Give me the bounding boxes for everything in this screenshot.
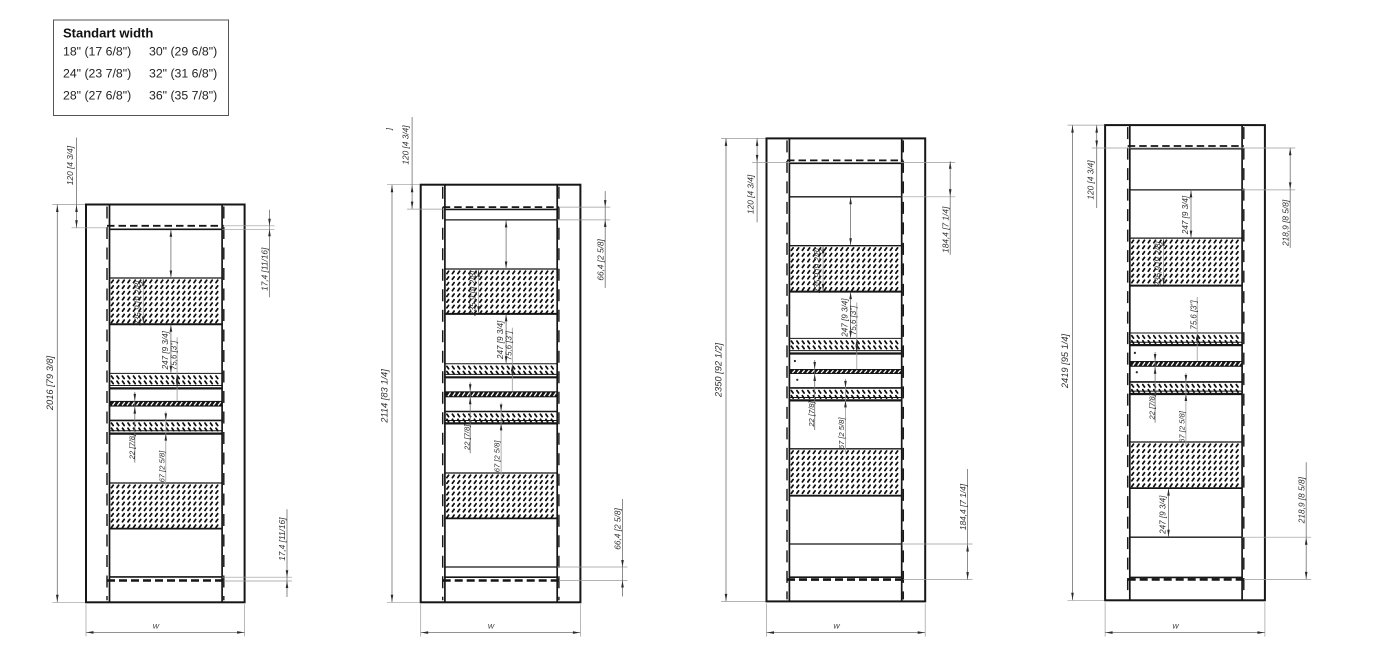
svg-text:218,9 [8 5/8]: 218,9 [8 5/8] [1296, 476, 1306, 524]
svg-text:66,4 [2 5/8]: 66,4 [2 5/8] [613, 508, 623, 550]
svg-text:18" (17 6/8"): 18" (17 6/8") [63, 45, 131, 59]
svg-text:235,9 [9 2/8]: 235,9 [9 2/8] [133, 280, 142, 327]
svg-text:235,9 [9 2/8]: 235,9 [9 2/8] [1154, 241, 1163, 288]
svg-text:2350 [92 1/2]: 2350 [92 1/2] [714, 342, 724, 398]
svg-text:75,6 [3"]: 75,6 [3"] [1189, 300, 1198, 330]
svg-text:22 [7/8]: 22 [7/8] [127, 433, 136, 460]
svg-text:75,6 [3"]: 75,6 [3"] [505, 330, 514, 360]
svg-text:235,9 [9 2/8]: 235,9 [9 2/8] [813, 247, 822, 294]
svg-text:28" (27 6/8"): 28" (27 6/8") [63, 89, 131, 103]
svg-text:2016 [79 3/8]: 2016 [79 3/8] [45, 355, 55, 411]
svg-text:120 [4 3/4]: 120 [4 3/4] [65, 145, 75, 185]
svg-text:184,4 [7 1/4]: 184,4 [7 1/4] [940, 206, 950, 253]
svg-text:2114 [83 1/4]: 2114 [83 1/4] [380, 369, 390, 424]
svg-text:67 [2 5/8]: 67 [2 5/8] [493, 440, 502, 473]
svg-text:120 [4 3/4]: 120 [4 3/4] [746, 174, 756, 214]
svg-text:120 [4 3/4]: 120 [4 3/4] [401, 125, 411, 165]
svg-text:W: W [1172, 624, 1179, 631]
svg-text:W: W [488, 624, 495, 631]
svg-text:22 [7/8]: 22 [7/8] [463, 424, 472, 451]
svg-text:W: W [833, 624, 840, 631]
svg-text:247 [9 3/4]: 247 [9 3/4] [1159, 495, 1168, 535]
svg-text:36" (35 7/8"): 36" (35 7/8") [149, 89, 217, 103]
svg-text:17,4 [11/16]: 17,4 [11/16] [260, 247, 270, 291]
svg-text:30" (29 6/8"): 30" (29 6/8") [149, 45, 217, 59]
svg-text:22 [7/8]: 22 [7/8] [807, 400, 816, 427]
svg-text:32" (31 6/8"): 32" (31 6/8") [149, 67, 217, 81]
svg-text:17,4 [11/16]: 17,4 [11/16] [277, 517, 287, 561]
svg-text:184,4 [7 1/4]: 184,4 [7 1/4] [958, 483, 968, 530]
svg-text:Standart width: Standart width [63, 26, 153, 41]
svg-text:67 [2 5/8]: 67 [2 5/8] [157, 450, 166, 483]
svg-text:75,6 [3"]: 75,6 [3"] [169, 340, 178, 370]
svg-text:W: W [153, 623, 160, 630]
svg-text:75,6 [3"]: 75,6 [3"] [849, 305, 858, 335]
svg-text:24" (23 7/8"): 24" (23 7/8") [63, 67, 131, 81]
svg-text:218,9 [8 5/8]: 218,9 [8 5/8] [1280, 199, 1290, 247]
svg-text:67 [2 5/8]: 67 [2 5/8] [837, 417, 846, 450]
svg-text:22 [7/8]: 22 [7/8] [1148, 393, 1157, 420]
svg-text:235,9 [9 2/8]: 235,9 [9 2/8] [469, 270, 478, 317]
svg-text:247 [9 3/4]: 247 [9 3/4] [1181, 195, 1190, 235]
svg-text:67 [2 5/8]: 67 [2 5/8] [1177, 410, 1186, 443]
svg-text:2419 [95 1/4]: 2419 [95 1/4] [1060, 333, 1070, 389]
svg-text:120 [4 3/4]: 120 [4 3/4] [1085, 160, 1095, 200]
svg-text:66,4 [2 5/8]: 66,4 [2 5/8] [595, 238, 605, 280]
